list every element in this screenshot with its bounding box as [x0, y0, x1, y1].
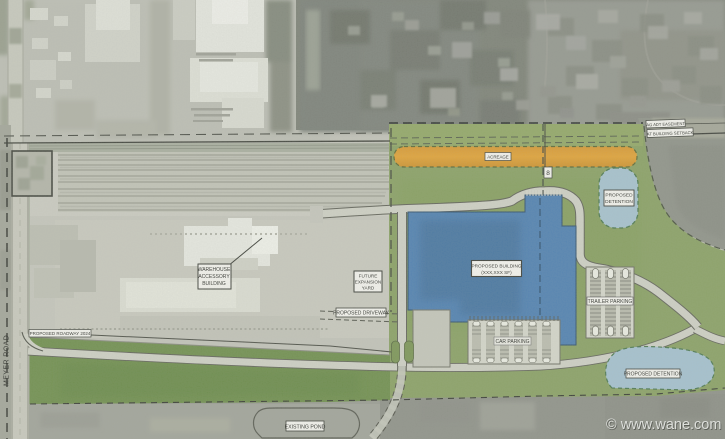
svg-text:© www.wane.com: © www.wane.com — [606, 417, 721, 433]
